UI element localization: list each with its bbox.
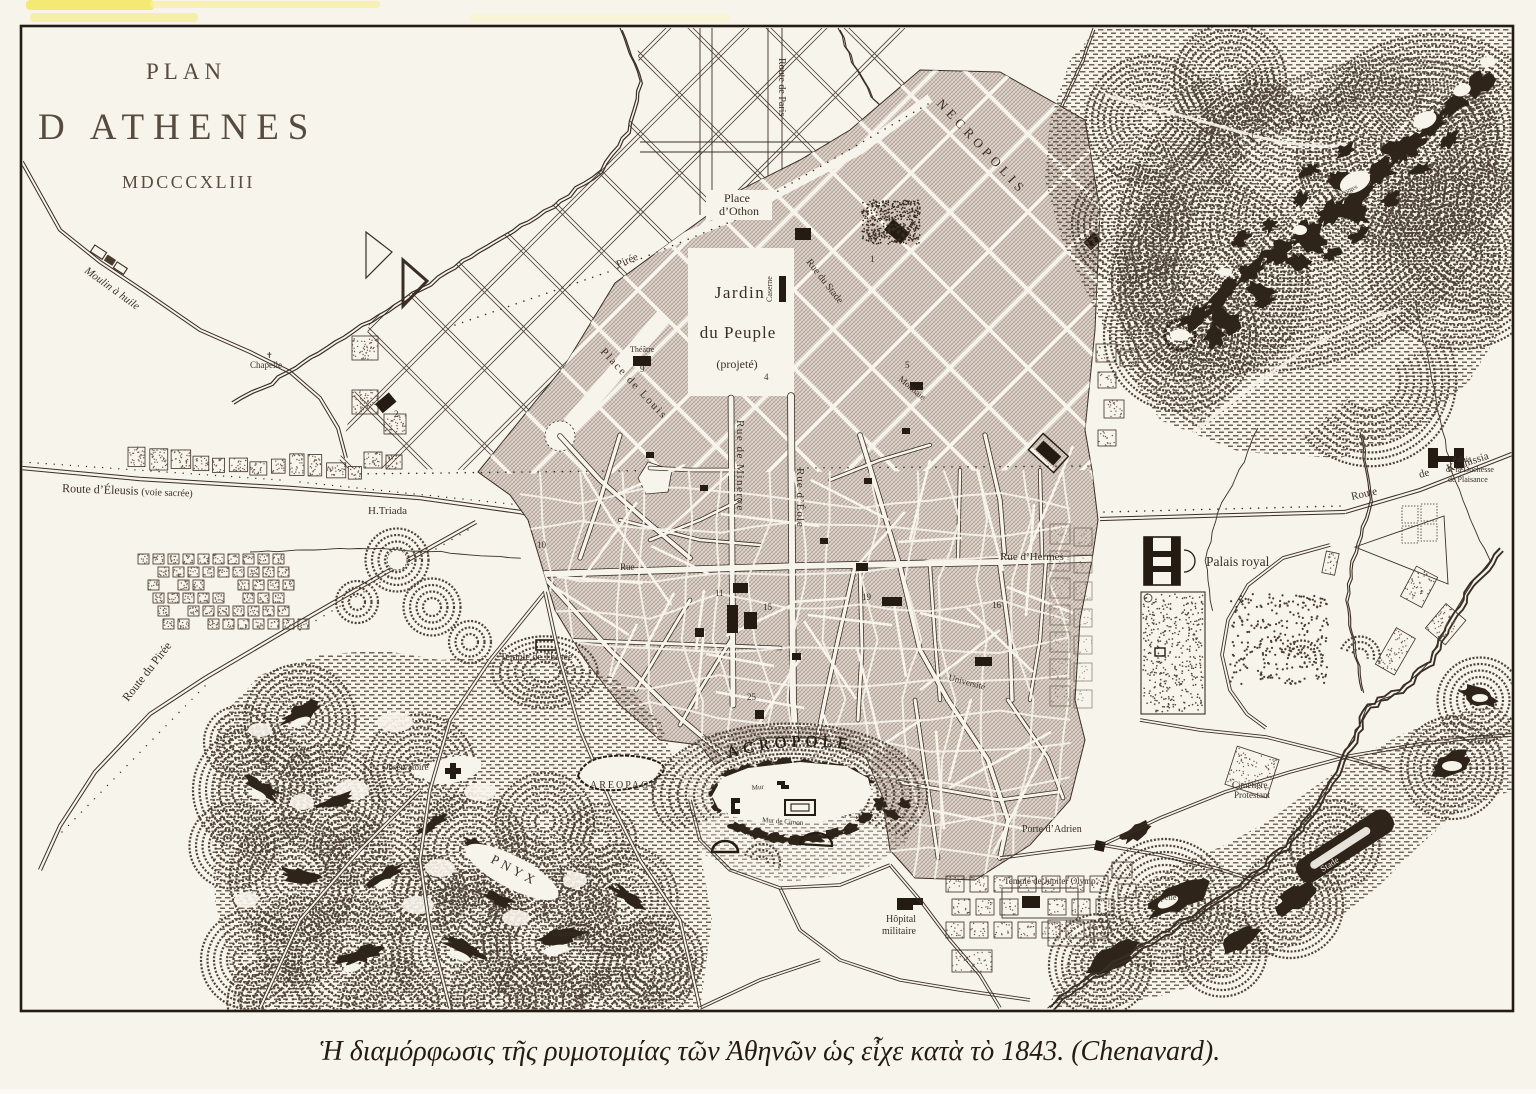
- svg-text:H.Triada: H.Triada: [368, 505, 407, 517]
- svg-text:Palais royal: Palais royal: [1206, 554, 1270, 569]
- svg-text:Caserne: Caserne: [765, 276, 774, 302]
- svg-text:D ATHENES: D ATHENES: [38, 107, 317, 148]
- svg-text:2: 2: [394, 409, 399, 419]
- svg-text:Théâtre: Théâtre: [630, 345, 655, 354]
- svg-text:Protestant: Protestant: [1234, 790, 1270, 800]
- svg-text:19: 19: [862, 592, 872, 602]
- svg-text:Ἡ διαμόρφωσις τῆς ρυμοτομίας τ: Ἡ διαμόρφωσις τῆς ρυμοτομίας τῶν Ἀθηνῶν …: [320, 1036, 1220, 1067]
- svg-text:Rue de Minerve: Rue de Minerve: [734, 420, 746, 512]
- svg-text:MDCCCXLIII: MDCCCXLIII: [122, 172, 255, 192]
- svg-text:Place: Place: [724, 191, 750, 205]
- svg-text:AREOPAGE: AREOPAGE: [590, 780, 658, 791]
- svg-text:Palais: Palais: [1452, 455, 1471, 464]
- svg-text:Chapelle: Chapelle: [250, 360, 282, 370]
- svg-text:11: 11: [715, 588, 724, 598]
- svg-text:Rue d’Éole: Rue d’Éole: [794, 468, 806, 528]
- svg-text:militaire: militaire: [882, 926, 916, 937]
- svg-text:Rue: Rue: [620, 562, 635, 572]
- svg-text:25: 25: [747, 692, 757, 702]
- svg-text:15: 15: [763, 602, 773, 612]
- svg-text:du Peuple: du Peuple: [700, 323, 777, 342]
- svg-text:d’Othon: d’Othon: [719, 204, 759, 218]
- svg-text:Observatoire: Observatoire: [382, 762, 428, 772]
- svg-text:Rue d’Hermès: Rue d’Hermès: [1000, 551, 1064, 563]
- svg-text:5: 5: [905, 360, 910, 370]
- svg-text:Chapelle: Chapelle: [1148, 893, 1177, 902]
- svg-text:Mur: Mur: [751, 783, 764, 792]
- svg-text:Hôpital: Hôpital: [886, 914, 916, 925]
- svg-text:16: 16: [992, 600, 1002, 610]
- svg-text:PLAN: PLAN: [146, 59, 226, 84]
- svg-text:Catacombes: Catacombes: [552, 929, 591, 938]
- svg-text:Jardin: Jardin: [715, 283, 766, 302]
- svg-text:de Plaisance: de Plaisance: [1448, 475, 1488, 484]
- svg-text:1: 1: [870, 254, 875, 264]
- svg-text:9: 9: [640, 364, 645, 374]
- svg-text:✝: ✝: [266, 351, 273, 360]
- svg-text:Porte d’Adrien: Porte d’Adrien: [1022, 824, 1082, 835]
- svg-text:(projeté): (projeté): [716, 357, 757, 371]
- svg-text:Route de Paris: Route de Paris: [776, 58, 787, 116]
- svg-text:Cimetière: Cimetière: [1232, 780, 1268, 790]
- svg-text:de la Duchesse: de la Duchesse: [1446, 465, 1494, 474]
- svg-text:4: 4: [764, 372, 769, 382]
- svg-text:10: 10: [537, 540, 547, 550]
